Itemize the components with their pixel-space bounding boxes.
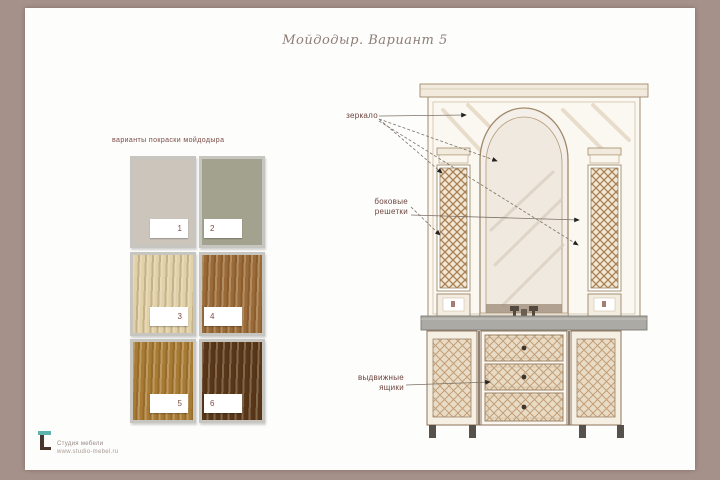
page-title: Мойдодыр. Вариант 5 xyxy=(235,33,495,48)
swatch-number: 6 xyxy=(210,399,214,408)
annotation-lattice-line1: боковые xyxy=(374,197,408,207)
mirror-arch xyxy=(480,108,568,317)
top-cornice xyxy=(420,84,648,97)
swatch-number-plate: 6 xyxy=(204,394,242,413)
swatch-number-plate: 3 xyxy=(150,307,188,326)
annotation-drawers-line1: выдвижные xyxy=(358,373,404,383)
countertop xyxy=(421,316,647,330)
paint-swatch-5: 5 xyxy=(130,339,196,423)
paint-swatch-4: 4 xyxy=(199,252,265,336)
swatch-number: 5 xyxy=(178,399,182,408)
right-lattice-column xyxy=(588,148,621,316)
swatch-number: 1 xyxy=(178,224,182,233)
paint-swatch-6: 6 xyxy=(199,339,265,423)
swatch-number: 4 xyxy=(210,312,214,321)
paint-swatch-2: 2 xyxy=(199,156,265,248)
studio-name: Студия мебели xyxy=(57,441,103,447)
swatch-number-plate: 5 xyxy=(150,394,188,413)
annotation-drawers: выдвижные ящики xyxy=(358,373,404,393)
swatch-number: 3 xyxy=(178,312,182,321)
swatch-section-caption: варианты покраски мойдодыра xyxy=(112,137,290,144)
annotation-lattice-line2: решетки xyxy=(374,207,408,217)
annotation-lattice: боковые решетки xyxy=(374,197,408,217)
logo-mark-foot xyxy=(40,447,51,450)
legs xyxy=(429,425,624,438)
swatch-number-plate: 4 xyxy=(204,307,242,326)
lower-cabinet xyxy=(427,331,621,425)
annotation-mirror: зеркало xyxy=(346,111,378,121)
paint-swatch-3: 3 xyxy=(130,252,196,336)
paint-swatch-1: 1 xyxy=(130,156,196,248)
studio-website: www.studio-mebel.ru xyxy=(57,449,118,455)
furniture-sketch xyxy=(413,80,655,448)
drawer-stack xyxy=(485,335,563,421)
swatch-number-plate: 1 xyxy=(150,219,188,238)
swatch-number: 2 xyxy=(210,224,214,233)
annotation-drawers-line2: ящики xyxy=(358,383,404,393)
left-lattice-column xyxy=(437,148,470,316)
swatch-number-plate: 2 xyxy=(204,219,242,238)
